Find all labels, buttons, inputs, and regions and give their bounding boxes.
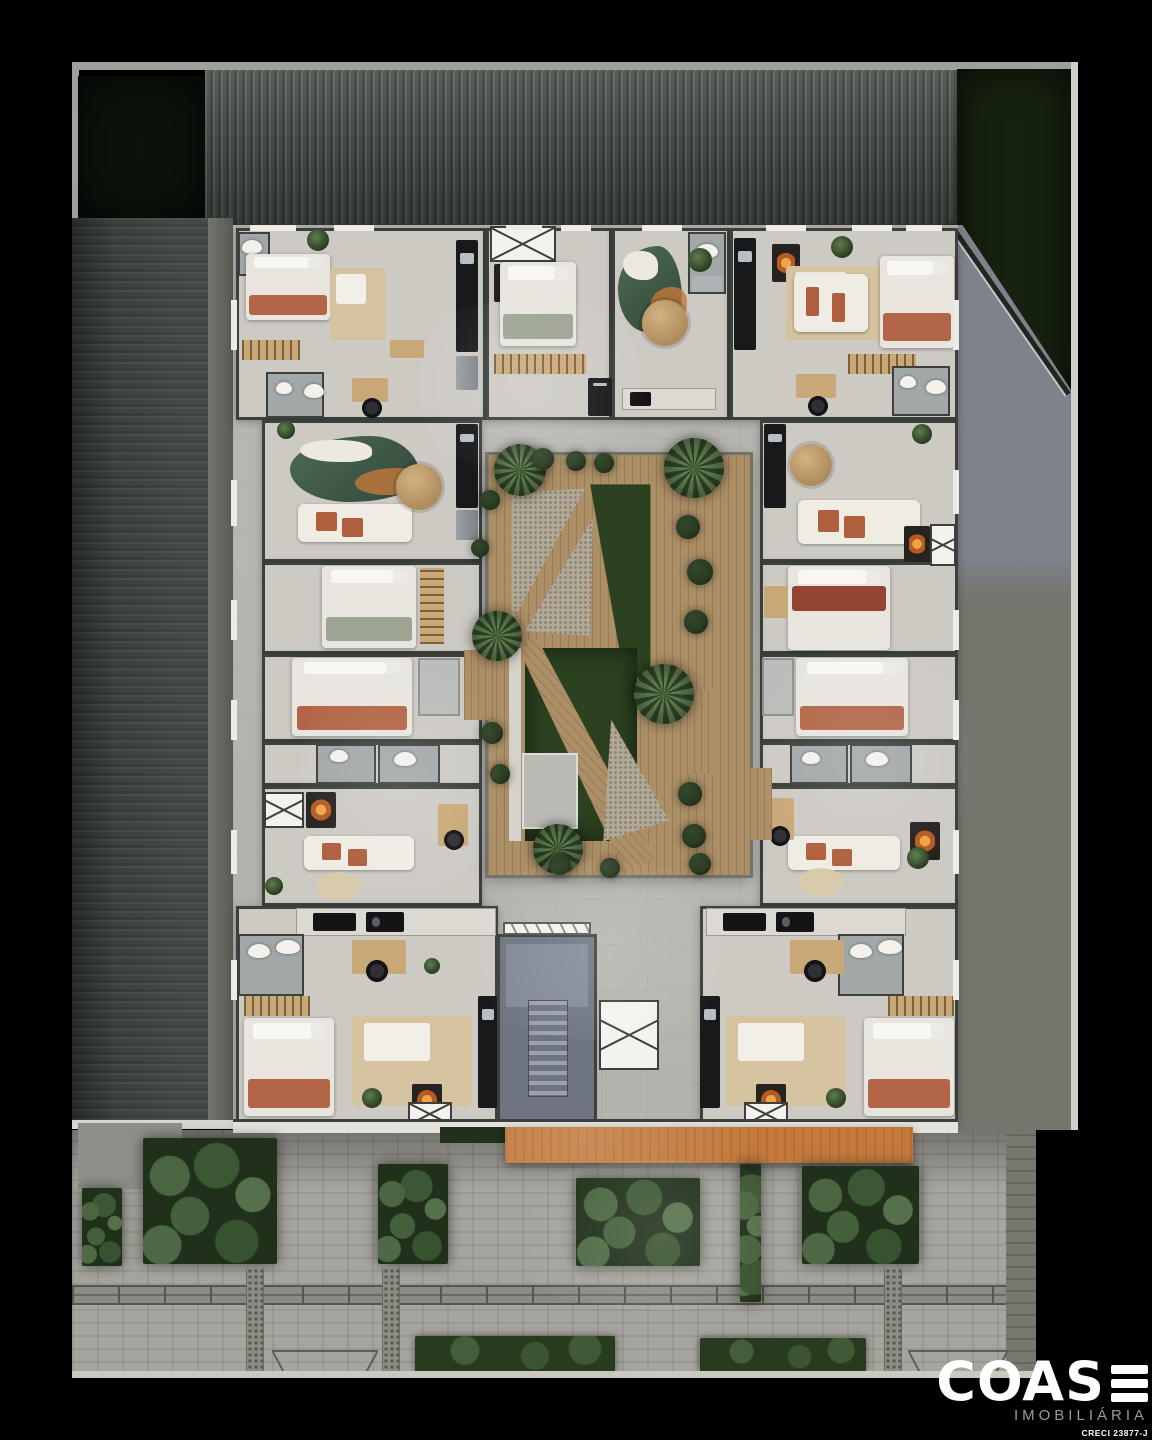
round-rug	[798, 868, 844, 896]
window-sill	[953, 830, 959, 874]
window-sill	[642, 225, 682, 231]
kitchen-counter	[478, 996, 498, 1108]
sofa	[798, 500, 920, 544]
window-sill	[231, 830, 237, 874]
window-sill	[906, 225, 942, 231]
window-sill	[231, 300, 237, 350]
planting-bed	[82, 1188, 122, 1266]
bed	[796, 658, 908, 736]
toilet	[878, 940, 902, 954]
window-sill	[953, 300, 959, 350]
wood-deck	[750, 768, 772, 840]
cooktop	[366, 912, 404, 932]
elevator	[930, 524, 956, 566]
planting-bed	[576, 1178, 700, 1266]
potted-plant	[912, 424, 932, 444]
window-sill	[953, 700, 959, 740]
shrub	[600, 858, 620, 878]
sofa	[298, 504, 412, 542]
shrub	[532, 448, 554, 470]
desk	[796, 374, 836, 398]
site-plan-rendering: COAS IMOBILIÁRIA CRECI 23877-J	[0, 0, 1152, 1440]
desk	[390, 340, 424, 358]
desk	[764, 586, 788, 618]
kitchen-counter	[588, 378, 612, 416]
clothes-rack	[242, 340, 300, 360]
wardrobe	[418, 658, 460, 716]
clothes-rack	[244, 996, 310, 1016]
office-chair	[808, 396, 828, 416]
kitchen-counter	[700, 996, 720, 1108]
potted-plant	[831, 236, 853, 258]
potted-plant	[265, 877, 283, 895]
planting-bed	[740, 1164, 761, 1302]
planting-bed	[378, 1164, 448, 1264]
elevator	[490, 226, 556, 262]
corrugated-roof-top	[205, 70, 957, 229]
tactile-paving-strip	[246, 1268, 264, 1376]
kitchen-counter	[456, 240, 478, 352]
window-sill	[231, 600, 237, 640]
sofa	[794, 274, 868, 332]
concrete-pad	[522, 753, 578, 828]
bed	[246, 254, 330, 320]
window-sill	[852, 225, 892, 231]
staircase	[497, 934, 597, 1124]
stair-steps	[528, 1000, 568, 1098]
shrub	[566, 451, 586, 471]
property-edge-right	[1071, 62, 1078, 1130]
daybed	[330, 268, 386, 340]
office-chair	[804, 960, 826, 982]
fireplace	[306, 792, 336, 828]
kitchen-counter	[456, 424, 478, 508]
shrub	[594, 453, 614, 473]
window-sill	[766, 225, 806, 231]
bathroom	[316, 744, 376, 784]
potted-plant	[307, 229, 329, 251]
hedge-strip	[415, 1336, 615, 1372]
central-courtyard	[488, 455, 750, 875]
brand-wordmark: COAS	[936, 1360, 1105, 1404]
refrigerator	[456, 510, 478, 540]
ribbed-roof-left	[72, 218, 208, 1124]
dark-paver-band	[1006, 1132, 1036, 1376]
wood-deck	[464, 650, 488, 720]
kitchen-counter	[764, 424, 786, 508]
toilet	[394, 752, 416, 766]
toilet	[304, 384, 324, 398]
cooktop	[776, 912, 814, 932]
shrub	[689, 853, 711, 875]
bathroom	[790, 744, 848, 784]
shrub	[687, 559, 713, 585]
shrub	[481, 722, 503, 744]
planting-bed	[143, 1138, 277, 1264]
hedge-strip	[700, 1338, 866, 1372]
toilet	[276, 940, 300, 954]
window-sill	[561, 225, 591, 231]
bed	[322, 566, 416, 648]
round-rug	[316, 872, 362, 900]
bed	[292, 658, 412, 736]
palm-tree	[634, 664, 694, 724]
sofa	[788, 836, 900, 870]
shrub	[682, 824, 706, 848]
window-sill	[231, 960, 237, 1000]
shrub	[676, 515, 700, 539]
window-sill	[231, 700, 237, 740]
toilet	[900, 376, 916, 388]
shrub	[490, 764, 510, 784]
bed	[788, 566, 890, 650]
tactile-paving-strip	[884, 1268, 902, 1376]
walkway-strip	[509, 648, 521, 841]
entrance-awning	[505, 1127, 913, 1163]
toilet	[242, 240, 262, 254]
shrub	[678, 782, 702, 806]
kitchen-counter	[622, 388, 716, 410]
dining-table	[642, 300, 688, 346]
property-edge-top	[72, 62, 1078, 70]
toilet	[802, 752, 820, 764]
brand-e-bars-icon	[1111, 1365, 1148, 1404]
palm-tree	[664, 438, 724, 498]
shower-tray	[692, 276, 722, 292]
office-chair	[362, 398, 382, 418]
clothes-rack	[888, 996, 954, 1016]
stair-hatch	[503, 922, 591, 935]
grass-patch-top-left	[78, 76, 205, 218]
potted-plant	[424, 958, 440, 974]
planting-bed	[802, 1166, 919, 1264]
creci-number: CRECI 23877-J	[936, 1428, 1148, 1438]
bed	[500, 262, 576, 346]
toilet	[248, 944, 270, 958]
office-chair	[770, 826, 790, 846]
potted-plant	[277, 421, 295, 439]
office-chair	[444, 830, 464, 850]
potted-plant	[907, 847, 929, 869]
dining-table	[790, 444, 832, 486]
wardrobe	[762, 658, 794, 716]
potted-plant	[688, 248, 712, 272]
shrub	[684, 610, 708, 634]
brand-logo: COAS IMOBILIÁRIA CRECI 23877-J	[936, 1360, 1148, 1438]
toilet	[926, 380, 946, 394]
refrigerator	[456, 356, 478, 390]
kitchen-counter	[734, 238, 756, 350]
window-sill	[250, 225, 296, 231]
fireplace	[904, 526, 930, 562]
stair-landing	[506, 944, 589, 1007]
window-sill	[953, 960, 959, 1000]
elevator	[599, 1000, 659, 1070]
clothes-rack	[494, 354, 586, 374]
curb-edge	[72, 1371, 1036, 1378]
window-sill	[231, 480, 237, 526]
toilet	[330, 750, 348, 762]
window-sill	[334, 225, 374, 231]
bed	[880, 256, 954, 348]
window-sill	[953, 470, 959, 514]
tactile-paving-strip	[382, 1268, 400, 1376]
shrub	[471, 539, 489, 557]
shrub	[549, 853, 571, 875]
window-sill	[506, 225, 542, 231]
brand-row: COAS	[936, 1360, 1148, 1404]
window-sill	[953, 610, 959, 650]
toilet	[276, 382, 292, 394]
bed	[864, 1018, 954, 1116]
potted-plant	[362, 1088, 382, 1108]
potted-plant	[826, 1088, 846, 1108]
office-chair	[366, 960, 388, 982]
roof-gutter	[208, 218, 233, 1124]
shrub	[480, 490, 500, 510]
toilet	[866, 752, 888, 766]
clothes-rack	[420, 568, 444, 644]
bed	[244, 1018, 334, 1116]
elevator	[264, 792, 304, 828]
palm-tree	[472, 611, 522, 661]
toilet	[850, 944, 872, 958]
dining-table	[396, 464, 442, 510]
sofa	[304, 836, 414, 870]
